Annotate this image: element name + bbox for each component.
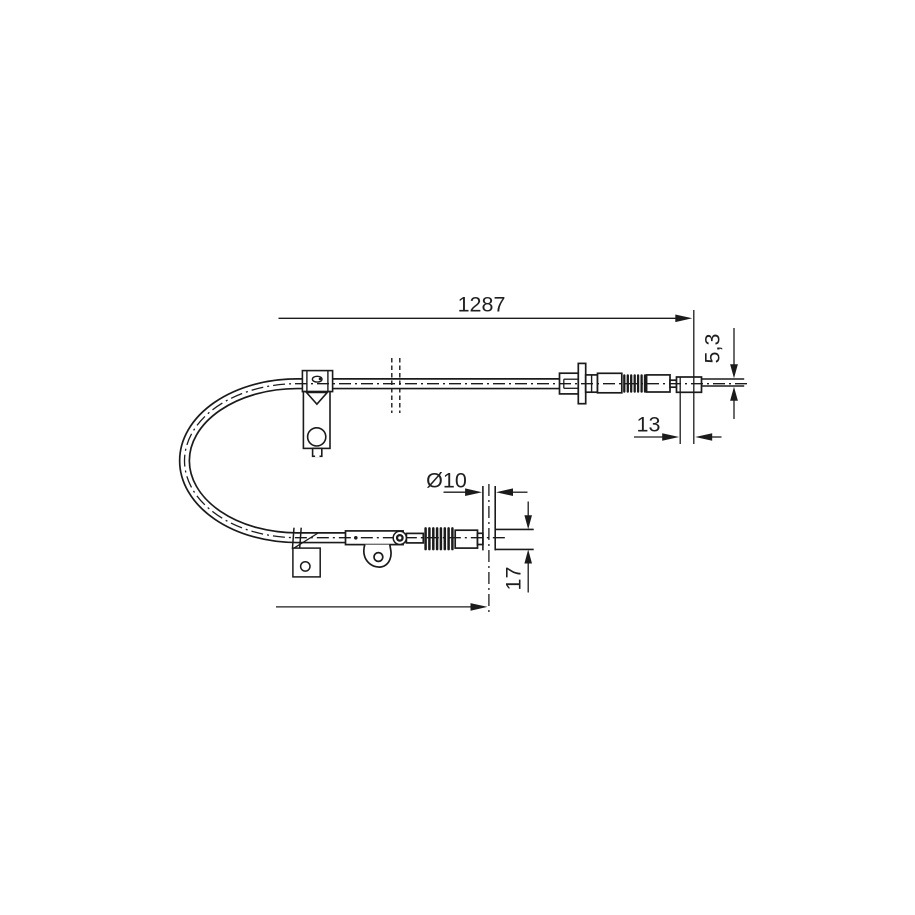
technical-drawing-page: 1287 13 5,3 Ø10 17 — [0, 0, 915, 915]
upper-bracket-hole — [308, 428, 326, 446]
label-overall-length: 1287 — [458, 293, 506, 317]
lower-end-sleeve — [455, 530, 477, 548]
drawing-background — [0, 0, 915, 915]
arm-pin-dot — [354, 536, 358, 540]
lower-nipple — [478, 533, 483, 544]
label-barrel-length: 17 — [502, 567, 526, 591]
brake-cable-drawing: 1287 13 5,3 Ø10 17 — [0, 0, 915, 915]
label-end-offset: 13 — [637, 413, 661, 437]
adjuster-cylinder — [598, 373, 622, 393]
tab-notch — [316, 451, 319, 456]
lobe-hole — [374, 553, 383, 562]
label-barrel-diameter: Ø10 — [426, 469, 467, 493]
lower-bracket-hole — [301, 562, 310, 571]
clamp-slot-dot — [319, 378, 322, 381]
label-rod-diameter: 5,3 — [701, 334, 725, 364]
